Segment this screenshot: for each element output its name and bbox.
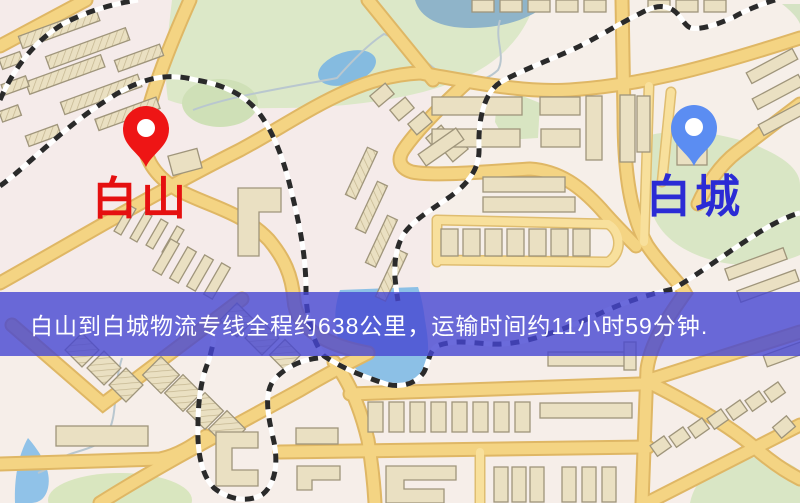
route-info-banner: 白山到白城物流专线全程约638公里，运输时间约11小时59分钟. [0,292,800,356]
map-view[interactable]: 白山 白城 白山到白城物流专线全程约638公里，运输时间约11小时59分钟. [0,0,800,503]
origin-pin[interactable] [121,102,171,170]
route-info-text: 白山到白城物流专线全程约638公里，运输时间约11小时59分钟. [30,307,708,341]
blue-pin-icon [671,105,717,166]
origin-label: 白山 [92,176,190,221]
red-pin-icon [123,106,169,167]
map-canvas[interactable] [0,0,800,503]
destination-pin[interactable] [669,101,719,169]
destination-label: 白城 [646,174,744,219]
